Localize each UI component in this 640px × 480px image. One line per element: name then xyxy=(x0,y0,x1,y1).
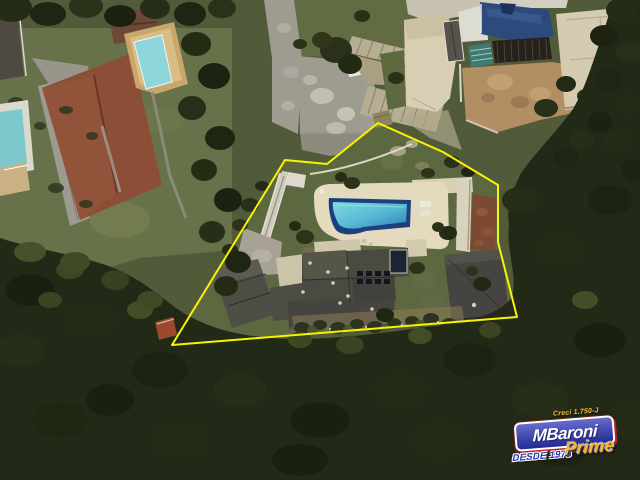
solar-panels xyxy=(492,37,552,63)
lounger xyxy=(420,201,431,207)
lounger xyxy=(420,210,431,216)
aerial-photo: Creci 1.750-J MBaroni DESDE 1975 Prime xyxy=(0,0,640,480)
satellite-scene xyxy=(0,0,640,480)
large-skylight xyxy=(390,250,407,273)
boat-shed xyxy=(0,162,30,196)
